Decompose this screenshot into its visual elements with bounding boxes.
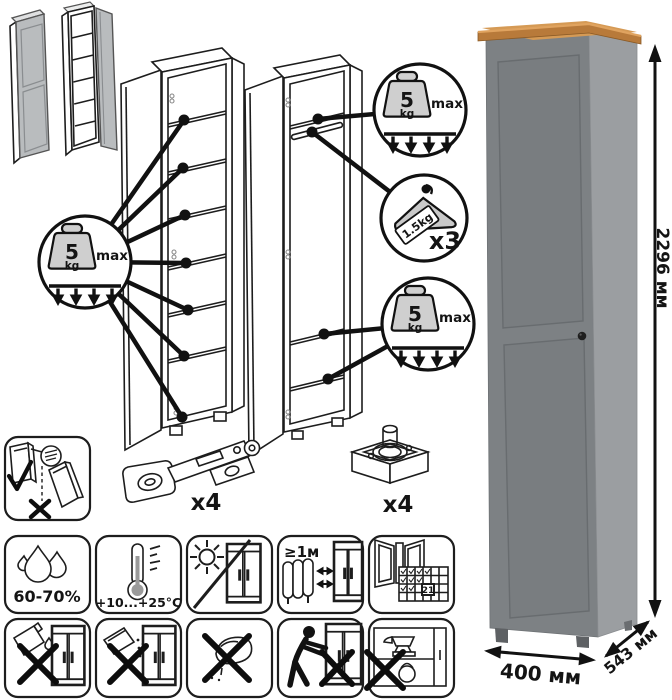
ventilation-icon: 21 <box>369 536 454 613</box>
foot-count-label: x4 <box>383 492 414 518</box>
door-upper-panel <box>498 55 583 328</box>
leg-figure: x4 <box>352 426 428 519</box>
humidity-icon: 60-70% <box>5 536 90 613</box>
wardrobe-icon <box>52 626 84 685</box>
no-wet-sponge-icon <box>187 619 272 697</box>
height-dimension: 2296 мм <box>649 44 672 618</box>
shelf-load-badge-left <box>39 216 131 308</box>
calendar-day-label: 21 <box>422 586 435 596</box>
no-dragging-icon <box>278 619 363 697</box>
no-solvents-icon <box>5 619 90 697</box>
infographic-svg: 5 kg max <box>0 0 672 700</box>
door-knob <box>578 332 587 341</box>
hanger-load-badge: 1.5kg x3 <box>381 175 467 261</box>
thumbnail-wardrobe-open <box>62 2 117 155</box>
width-dimension: 400 мм <box>483 644 596 689</box>
heat-distance-icon: ≥1м <box>278 536 363 613</box>
temperature-icon: +10...+25°C <box>96 536 181 613</box>
radiator-icon <box>283 559 313 604</box>
anti-tip-warning-icon <box>5 437 90 520</box>
temperature-label: +10...+25°C <box>96 595 181 610</box>
shelf-cabinet-diagram <box>121 48 244 450</box>
height-dimension-label: 2296 мм <box>652 227 672 308</box>
width-dimension-label: 400 мм <box>499 659 582 690</box>
kettlebell-icon <box>399 664 415 683</box>
humidity-label: 60-70% <box>13 587 80 606</box>
min-distance-label: ≥1м <box>284 543 319 561</box>
hanger-count-label: x3 <box>429 227 461 255</box>
no-sunlight-icon <box>187 536 272 613</box>
wardrobe-icon <box>227 544 260 602</box>
no-heavy-load-icon <box>367 619 454 697</box>
product-render <box>478 21 641 648</box>
door-lower-panel <box>504 338 589 618</box>
thumbnail-wardrobe-closed <box>10 10 49 163</box>
calendar-icon: 21 <box>399 567 448 601</box>
wardrobe-icon <box>334 542 362 601</box>
shelf-load-badge-bottom <box>382 278 474 370</box>
no-abrasives-icon <box>96 619 181 697</box>
wardrobe-icon <box>143 626 175 685</box>
hinge-figure: x4 <box>123 441 260 517</box>
shelf-load-badge-top <box>374 64 466 156</box>
hinge-count-label: x4 <box>191 490 222 516</box>
furniture-care-infographic: 5 kg max <box>0 0 672 700</box>
